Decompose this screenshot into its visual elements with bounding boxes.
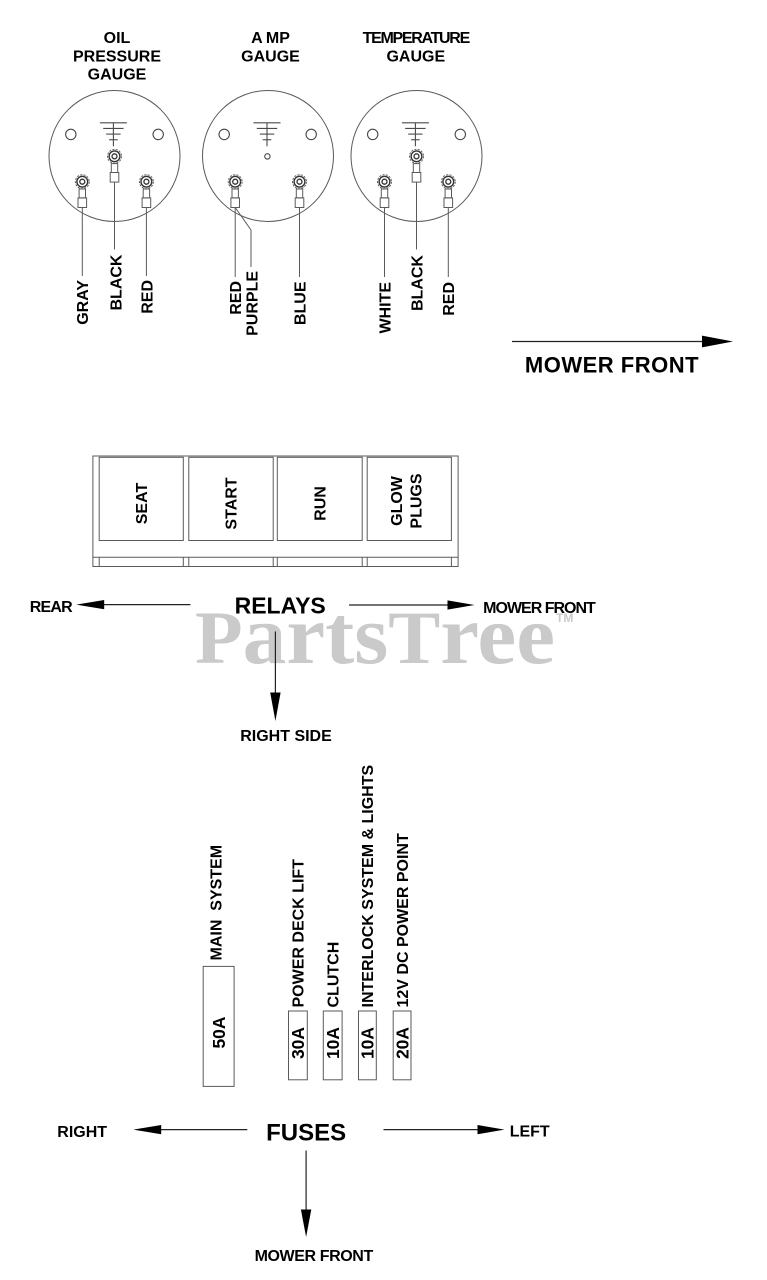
svg-text:RED: RED <box>228 281 245 315</box>
svg-text:PLUGS: PLUGS <box>409 473 426 528</box>
svg-text:TEMPERATURE: TEMPERATURE <box>363 30 471 47</box>
svg-text:WHITE: WHITE <box>378 282 395 334</box>
svg-text:MOWER FRONT: MOWER FRONT <box>483 600 596 617</box>
svg-text:RED: RED <box>441 282 458 316</box>
svg-text:A MP: A MP <box>251 30 290 47</box>
svg-text:30A: 30A <box>288 1027 308 1059</box>
svg-text:GLOW: GLOW <box>389 475 406 526</box>
svg-text:REAR: REAR <box>30 599 73 616</box>
svg-text:BLUE: BLUE <box>292 281 309 325</box>
svg-text:FUSES: FUSES <box>266 1120 346 1147</box>
svg-text:RIGHT SIDE: RIGHT SIDE <box>240 728 332 745</box>
svg-text:CLUTCH: CLUTCH <box>326 942 343 1008</box>
svg-text:PRESSURE: PRESSURE <box>73 49 161 66</box>
svg-text:RUN: RUN <box>312 486 329 521</box>
svg-text:RED: RED <box>139 280 156 314</box>
svg-text:MOWER FRONT: MOWER FRONT <box>255 1248 374 1265</box>
svg-text:INTERLOCK SYSTEM & LIGHTS: INTERLOCK SYSTEM & LIGHTS <box>360 765 377 1008</box>
svg-text:PURPLE: PURPLE <box>245 271 262 336</box>
svg-text:OIL: OIL <box>104 30 131 47</box>
svg-text:MAIN SYSTEM: MAIN SYSTEM <box>209 845 226 961</box>
svg-text:10A: 10A <box>358 1027 378 1059</box>
svg-text:GAUGE: GAUGE <box>88 67 147 84</box>
svg-text:50A: 50A <box>209 1016 229 1048</box>
svg-text:BLACK: BLACK <box>410 255 427 311</box>
svg-text:20A: 20A <box>392 1027 412 1059</box>
svg-text:GRAY: GRAY <box>75 280 92 325</box>
svg-text:MOWER FRONT: MOWER FRONT <box>525 353 699 378</box>
svg-text:12V DC POWER POINT: 12V DC POWER POINT <box>395 833 412 1007</box>
svg-text:RELAYS: RELAYS <box>235 592 326 618</box>
svg-text:START: START <box>224 477 241 529</box>
svg-text:10A: 10A <box>323 1027 343 1059</box>
svg-text:GAUGE: GAUGE <box>241 49 300 66</box>
svg-text:GAUGE: GAUGE <box>386 49 445 66</box>
svg-text:BLACK: BLACK <box>109 254 126 310</box>
svg-text:LEFT: LEFT <box>510 1124 550 1141</box>
svg-text:SEAT: SEAT <box>134 483 151 525</box>
svg-text:RIGHT: RIGHT <box>57 1124 107 1141</box>
svg-text:POWER DECK LIFT: POWER DECK LIFT <box>291 859 308 1008</box>
